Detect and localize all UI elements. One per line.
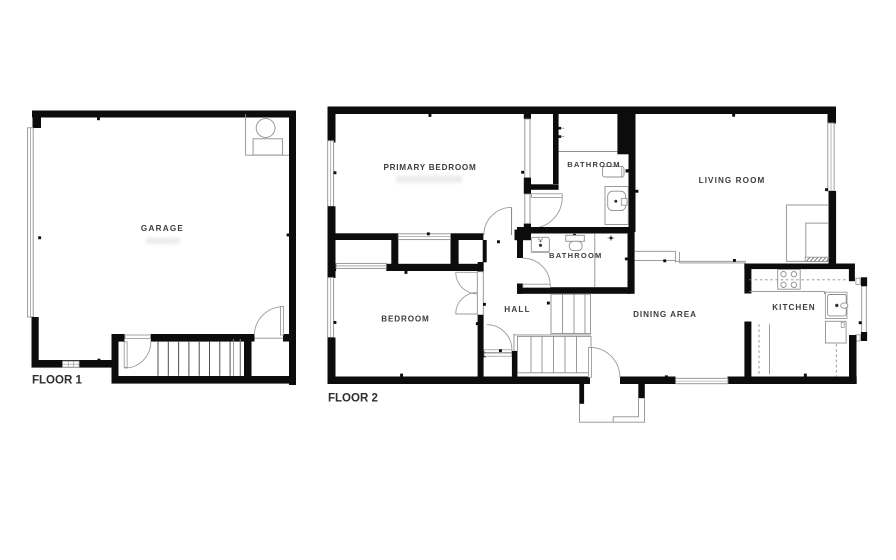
- svg-text:FLOOR 2: FLOOR 2: [328, 393, 378, 405]
- svg-text:KITCHEN: KITCHEN: [772, 303, 815, 312]
- svg-text:BEDROOM: BEDROOM: [381, 315, 429, 324]
- svg-text:HALL: HALL: [504, 305, 530, 314]
- svg-text:BATHROOM: BATHROOM: [567, 160, 620, 169]
- svg-text:DINING AREA: DINING AREA: [633, 310, 697, 319]
- svg-text:GARAGE: GARAGE: [141, 224, 184, 233]
- svg-text:PRIMARY BEDROOM: PRIMARY BEDROOM: [384, 163, 477, 172]
- svg-text:BATHROOM: BATHROOM: [549, 251, 602, 260]
- svg-text:FLOOR 1: FLOOR 1: [32, 375, 82, 387]
- svg-text:LIVING ROOM: LIVING ROOM: [699, 176, 766, 185]
